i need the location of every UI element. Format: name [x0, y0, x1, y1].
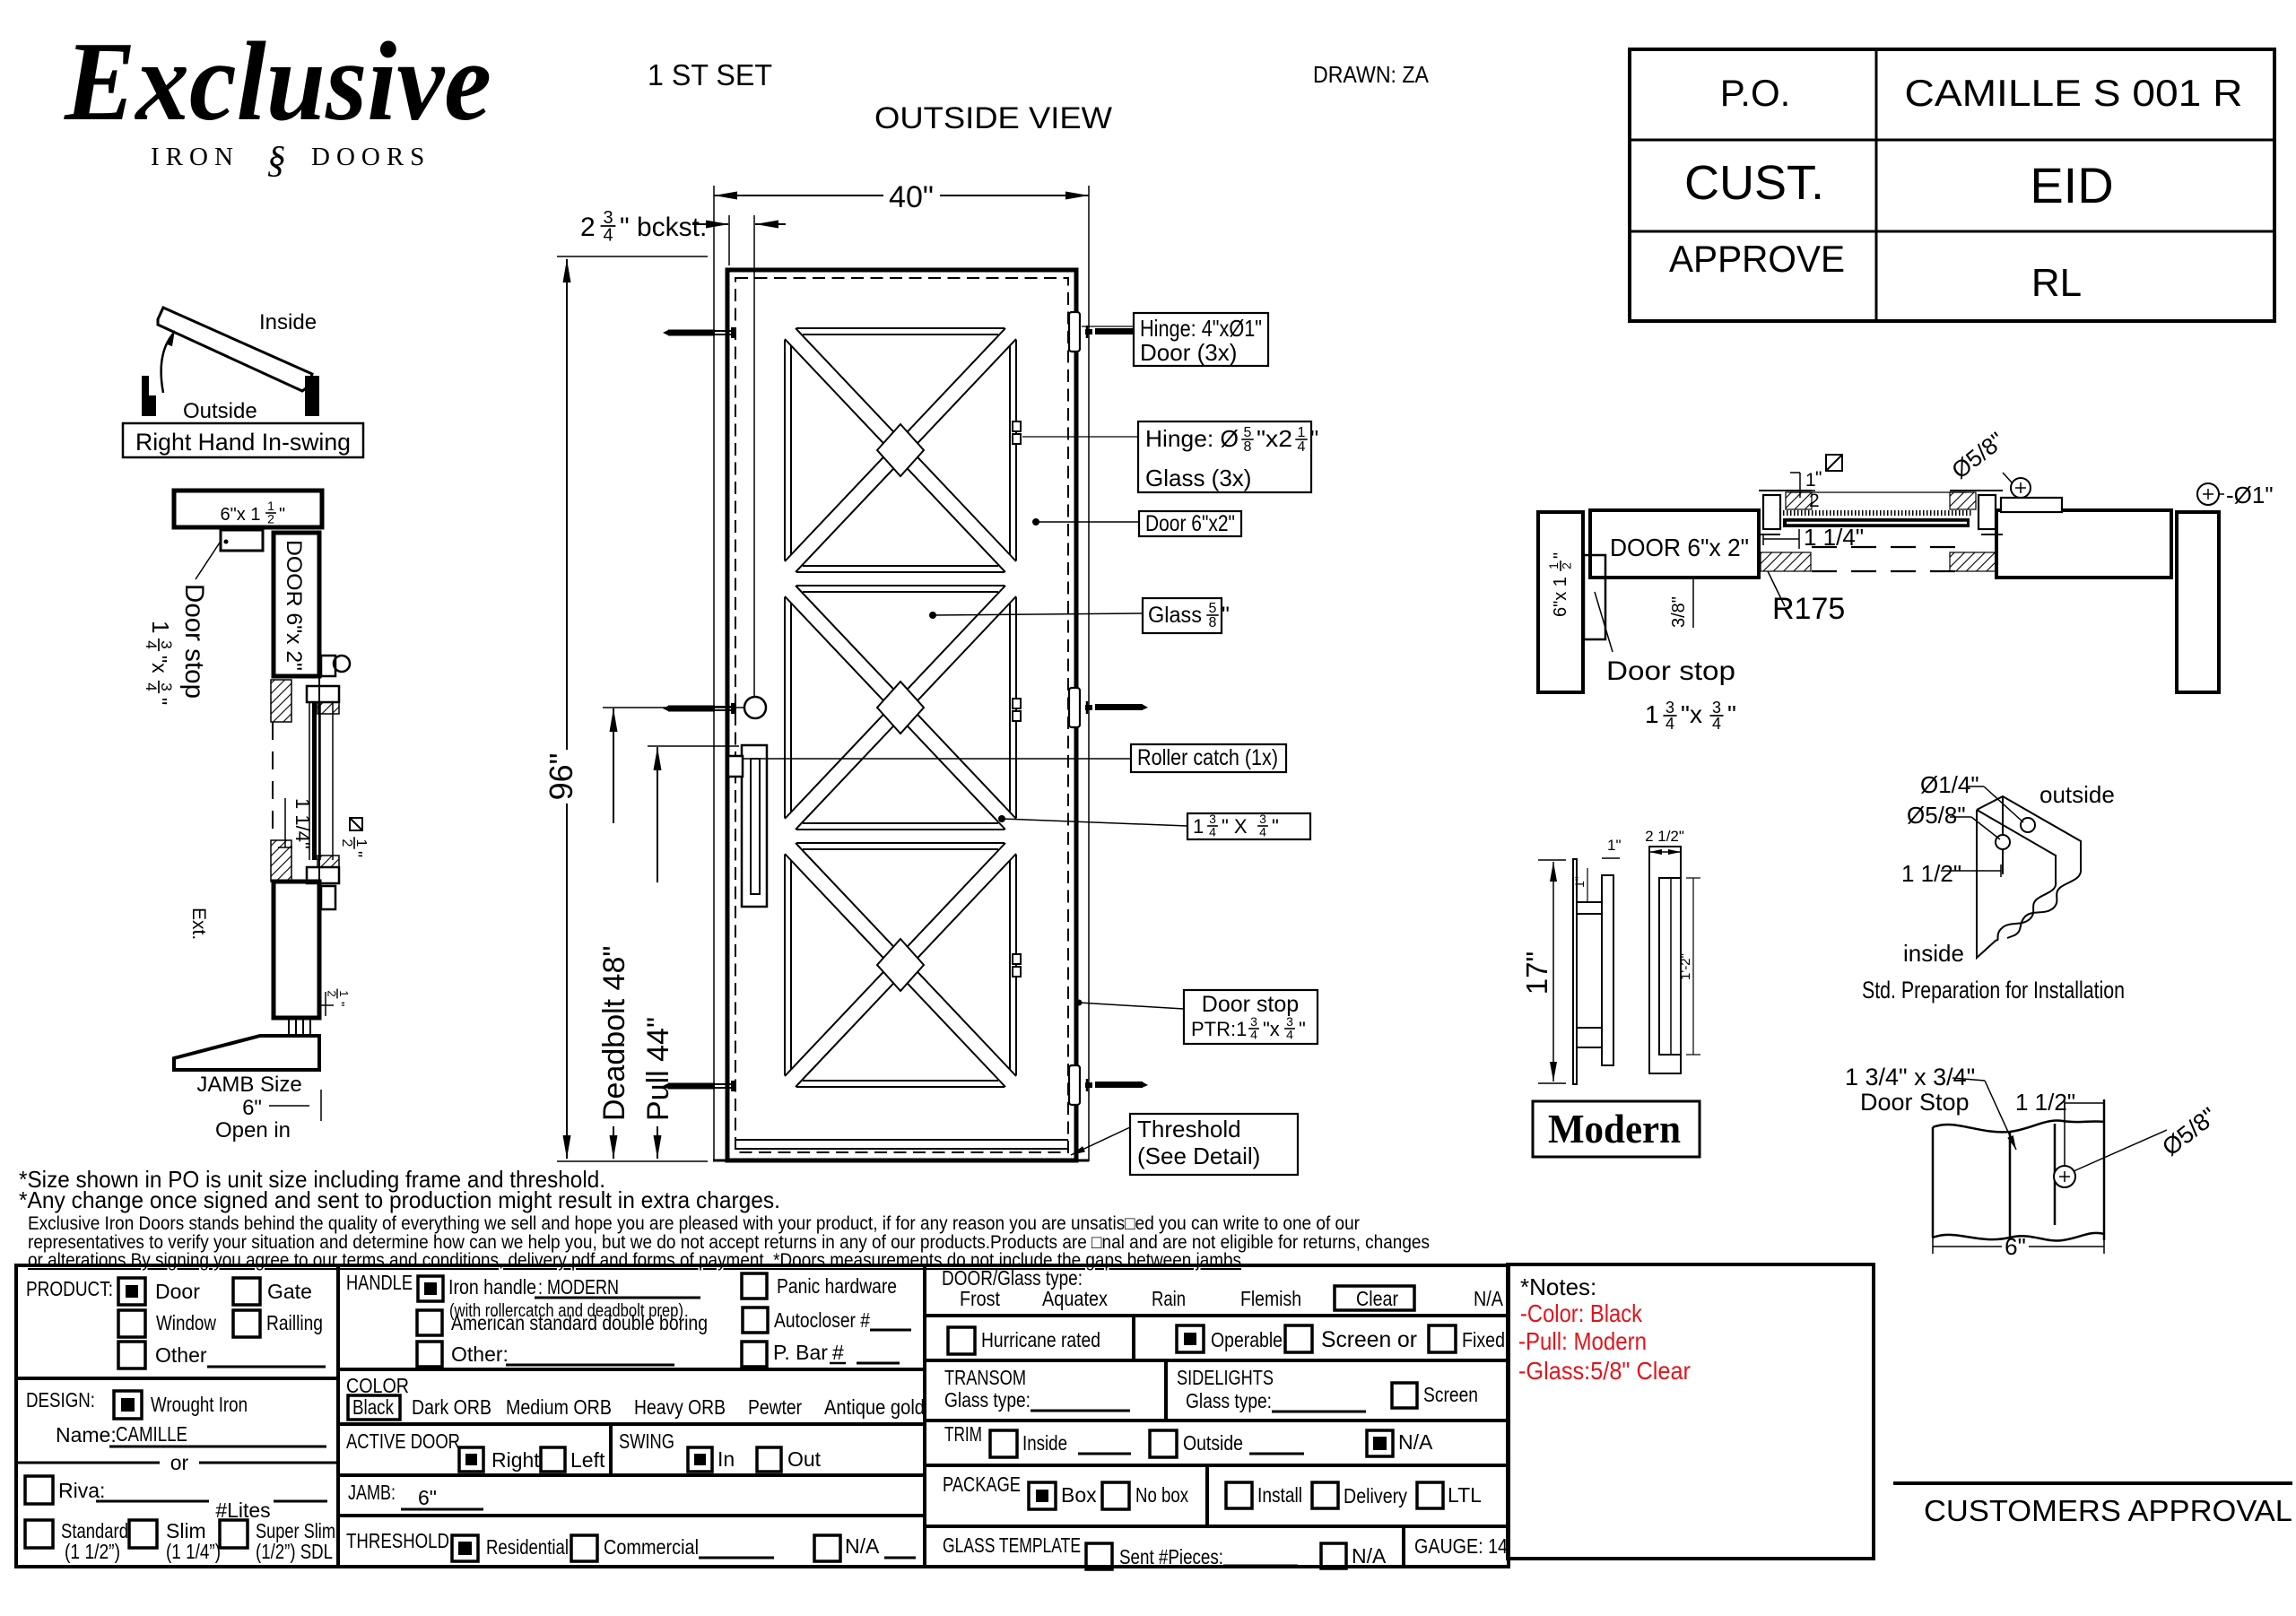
- svg-text:CUSTOMERS APPROVAL: CUSTOMERS APPROVAL: [1924, 1494, 2292, 1527]
- svg-text:SIDELIGHTS: SIDELIGHTS: [1177, 1366, 1274, 1389]
- svg-text:Right Hand In-swing: Right Hand In-swing: [135, 429, 351, 456]
- svg-text:": ": [332, 1002, 347, 1006]
- svg-text:1: 1: [353, 839, 369, 847]
- svg-text:4: 4: [1259, 824, 1266, 838]
- svg-text:-Glass:5/8" Clear: -Glass:5/8" Clear: [1518, 1357, 1691, 1385]
- svg-text:*Notes:: *Notes:: [1520, 1273, 1596, 1300]
- svg-text:8: 8: [1209, 615, 1217, 630]
- svg-text:§: §: [267, 140, 286, 181]
- svg-text:N/A: N/A: [1474, 1287, 1504, 1310]
- svg-text:40": 40": [889, 180, 934, 214]
- svg-text:Door (3x): Door (3x): [1140, 339, 1237, 366]
- svg-text:HANDLE: HANDLE: [346, 1271, 413, 1294]
- svg-text:4: 4: [1298, 439, 1306, 455]
- svg-text:EID: EID: [2030, 157, 2113, 213]
- svg-text:Residential: Residential: [486, 1535, 569, 1559]
- svg-text:4: 4: [143, 640, 160, 648]
- svg-text:Glass: Glass: [1148, 603, 1202, 628]
- svg-text:: MODERN: : MODERN: [538, 1275, 619, 1299]
- svg-text:1 3/4" x 3/4": 1 3/4" x 3/4": [1845, 1064, 1975, 1090]
- svg-text:2: 2: [580, 213, 596, 242]
- svg-text:2: 2: [339, 839, 354, 847]
- svg-text:#: #: [832, 1341, 844, 1364]
- svg-text:DOOR 6"x 2": DOOR 6"x 2": [282, 540, 306, 671]
- svg-text:"x: "x: [1263, 1018, 1280, 1040]
- svg-text:Screen: Screen: [1423, 1383, 1478, 1406]
- svg-text:THRESHOLD: THRESHOLD: [346, 1529, 449, 1552]
- svg-text:": ": [1222, 603, 1230, 628]
- svg-text:CAMILLE: CAMILLE: [116, 1422, 187, 1446]
- svg-text:6"x 1: 6"x 1: [1551, 577, 1570, 617]
- svg-text:-Color: Black: -Color: Black: [1520, 1299, 1643, 1327]
- svg-text:Riva:: Riva:: [58, 1479, 105, 1502]
- svg-text:Aquatex: Aquatex: [1042, 1287, 1108, 1310]
- svg-text:In: In: [717, 1447, 735, 1471]
- svg-text:PTR:1: PTR:1: [1191, 1018, 1247, 1040]
- svg-text:Hurricane rated: Hurricane rated: [981, 1328, 1100, 1351]
- svg-text:LTL: LTL: [1448, 1483, 1482, 1507]
- svg-text:": ": [279, 505, 285, 525]
- svg-text:6": 6": [242, 1096, 262, 1120]
- svg-text:Gate: Gate: [267, 1280, 312, 1303]
- svg-text:GLASS TEMPLATE: GLASS TEMPLATE: [943, 1533, 1081, 1557]
- svg-text:Medium ORB: Medium ORB: [506, 1395, 612, 1419]
- svg-text:DOOR 6"x 2": DOOR 6"x 2": [1610, 534, 1749, 561]
- svg-text:Other:: Other:: [451, 1342, 509, 1366]
- svg-text:Black: Black: [352, 1395, 394, 1419]
- svg-text:": ": [148, 698, 171, 705]
- svg-text:1 ST SET: 1 ST SET: [648, 58, 772, 91]
- svg-text:1: 1: [1805, 470, 1816, 491]
- svg-text:TRANSOM: TRANSOM: [944, 1366, 1026, 1389]
- svg-text:1": 1": [1607, 837, 1622, 854]
- svg-text:": ": [1551, 552, 1570, 559]
- svg-text:-Pull: Modern: -Pull: Modern: [1518, 1327, 1647, 1355]
- svg-text:CAMILLE S 001 R: CAMILLE S 001 R: [1905, 72, 2243, 114]
- svg-text:Right: Right: [491, 1448, 540, 1472]
- svg-text:1: 1: [1193, 815, 1204, 838]
- svg-text:IRON: IRON: [151, 143, 239, 171]
- svg-text:Modern: Modern: [1548, 1106, 1681, 1151]
- svg-text:Other: Other: [155, 1343, 207, 1367]
- svg-text:Glass (3x): Glass (3x): [1145, 465, 1251, 491]
- svg-text:PACKAGE: PACKAGE: [943, 1473, 1021, 1496]
- svg-text:Door stop: Door stop: [179, 584, 209, 699]
- svg-text:5: 5: [1209, 601, 1217, 616]
- svg-text:Operable: Operable: [1211, 1328, 1283, 1351]
- svg-text:Outside: Outside: [1183, 1431, 1243, 1455]
- svg-text:Glass type:: Glass type:: [944, 1388, 1031, 1412]
- svg-text:": ": [1727, 700, 1736, 728]
- svg-text:Door stop: Door stop: [1202, 992, 1299, 1017]
- svg-text:Commercial: Commercial: [604, 1535, 699, 1559]
- svg-text:-Ø1": -Ø1": [2226, 482, 2274, 508]
- svg-text:6": 6": [2005, 1233, 2026, 1260]
- svg-text:Hinge: Ø: Hinge: Ø: [1145, 425, 1239, 452]
- svg-text:P.O.: P.O.: [1720, 72, 1791, 114]
- svg-text:Iron handle: Iron handle: [448, 1275, 536, 1299]
- svg-text:Sent #Pieces:: Sent #Pieces:: [1119, 1545, 1223, 1568]
- svg-text:6": 6": [418, 1486, 437, 1509]
- svg-text:No box: No box: [1135, 1483, 1188, 1507]
- svg-text:DOORS: DOORS: [311, 143, 430, 171]
- svg-text:Frost: Frost: [960, 1287, 1001, 1310]
- svg-text:Fixed: Fixed: [1462, 1328, 1505, 1351]
- svg-text:JAMB:: JAMB:: [348, 1481, 396, 1504]
- svg-text:1: 1: [1645, 700, 1659, 728]
- svg-text:2 1/2": 2 1/2": [1645, 828, 1684, 845]
- svg-text:1 1/4": 1 1/4": [1804, 524, 1864, 551]
- svg-text:4: 4: [1665, 715, 1674, 733]
- svg-text:Threshold: Threshold: [1137, 1116, 1241, 1142]
- svg-text:Screen or: Screen or: [1321, 1327, 1417, 1352]
- svg-text:DESIGN:: DESIGN:: [26, 1388, 95, 1412]
- svg-text:1: 1: [1298, 425, 1306, 440]
- svg-text:4: 4: [1250, 1027, 1257, 1041]
- svg-text:Railling: Railling: [266, 1311, 323, 1334]
- svg-text:Clear: Clear: [1356, 1287, 1398, 1310]
- svg-text:Ext.: Ext.: [188, 908, 209, 940]
- svg-text:COLOR: COLOR: [346, 1374, 409, 1397]
- svg-text:*Any change once signed and se: *Any change once signed and sent to prod…: [19, 1186, 780, 1213]
- svg-text:8: 8: [1244, 439, 1252, 455]
- svg-text:(See Detail): (See Detail): [1137, 1142, 1260, 1169]
- svg-text:Inside: Inside: [1022, 1431, 1067, 1455]
- svg-text:1 1/4": 1 1/4": [291, 798, 314, 849]
- svg-text:Inside: Inside: [259, 310, 317, 334]
- svg-text:Heavy ORB: Heavy ORB: [634, 1395, 726, 1419]
- svg-text:Left: Left: [570, 1448, 605, 1472]
- svg-text:" bckst.: " bckst.: [620, 213, 707, 242]
- svg-text:2: 2: [325, 990, 338, 996]
- svg-text:Pull 44": Pull 44": [641, 1017, 675, 1121]
- svg-text:(1 1/2”): (1 1/2”): [65, 1540, 120, 1563]
- svg-text:6"x 1: 6"x 1: [221, 505, 261, 525]
- svg-text:Autocloser #: Autocloser #: [774, 1308, 870, 1332]
- svg-text:Roller catch (1x): Roller catch (1x): [1137, 745, 1278, 770]
- svg-text:N/A: N/A: [845, 1534, 880, 1558]
- svg-text:5: 5: [1244, 425, 1252, 440]
- svg-text:1": 1": [1572, 876, 1587, 888]
- svg-text:": ": [1815, 468, 1822, 489]
- svg-text:": ": [1310, 425, 1318, 452]
- svg-text:TRIM: TRIM: [944, 1422, 982, 1446]
- svg-text:PRODUCT:: PRODUCT:: [26, 1277, 113, 1300]
- svg-text:1 1/2": 1 1/2": [1901, 860, 1961, 887]
- svg-text:inside: inside: [1903, 940, 1964, 967]
- svg-text:SWING: SWING: [619, 1429, 674, 1453]
- svg-text:2: 2: [1809, 491, 1820, 511]
- svg-text:Door Stop: Door Stop: [1860, 1089, 1970, 1116]
- svg-text:CUST.: CUST.: [1684, 156, 1824, 210]
- svg-text:outside: outside: [2039, 781, 2115, 808]
- svg-text:3/8": 3/8": [1669, 596, 1689, 628]
- svg-text:Wrought Iron: Wrought Iron: [151, 1393, 248, 1416]
- svg-text:P. Bar: P. Bar: [773, 1341, 828, 1364]
- svg-text:4: 4: [603, 225, 613, 245]
- svg-text:Ø5/8": Ø5/8": [1907, 802, 1966, 829]
- svg-text:JAMB Size: JAMB Size: [196, 1073, 301, 1097]
- svg-text:Antique gold: Antique gold: [824, 1395, 925, 1419]
- svg-text:": ": [1272, 815, 1279, 838]
- svg-text:"x: "x: [1681, 700, 1702, 728]
- svg-text:American standard double borin: American standard double boring: [451, 1311, 708, 1334]
- svg-text:R175: R175: [1772, 592, 1845, 626]
- svg-text:96": 96": [543, 753, 579, 801]
- svg-text:Outside: Outside: [183, 399, 257, 423]
- svg-text:1 1/2": 1 1/2": [2015, 1089, 2075, 1116]
- svg-text:Dark ORB: Dark ORB: [412, 1395, 491, 1419]
- svg-text:2: 2: [267, 511, 274, 526]
- svg-text:17": 17": [1520, 951, 1553, 995]
- svg-text:Door stop: Door stop: [1606, 656, 1735, 686]
- svg-text:GAUGE: 14: GAUGE: 14: [1414, 1534, 1508, 1558]
- svg-text:"x2: "x2: [1257, 425, 1292, 452]
- svg-text:Glass type:: Glass type:: [1186, 1389, 1272, 1412]
- svg-text:Install: Install: [1257, 1483, 1302, 1507]
- svg-text:2: 2: [1559, 562, 1573, 569]
- svg-text:Out: Out: [787, 1447, 822, 1471]
- svg-text:or: or: [170, 1451, 189, 1474]
- svg-text:(1 1/4”): (1 1/4”): [166, 1540, 221, 1563]
- svg-text:4: 4: [1209, 824, 1216, 838]
- svg-text:ACTIVE DOOR: ACTIVE DOOR: [346, 1429, 460, 1453]
- svg-text:APPROVE: APPROVE: [1669, 238, 1845, 280]
- svg-text:Delivery: Delivery: [1344, 1484, 1407, 1507]
- svg-text:Deadbolt 48": Deadbolt 48": [597, 946, 631, 1121]
- svg-text:": ": [1299, 1018, 1306, 1040]
- svg-text:"x: "x: [148, 656, 171, 673]
- svg-text:Std. Preparation for Installat: Std. Preparation for Installation: [1862, 977, 2125, 1003]
- svg-text:" X: " X: [1222, 815, 1248, 838]
- svg-text:4: 4: [1712, 715, 1721, 733]
- svg-text:(1/2”) SDL: (1/2”) SDL: [256, 1540, 333, 1563]
- svg-text:N/A: N/A: [1352, 1544, 1387, 1568]
- svg-text:Name:: Name:: [56, 1423, 117, 1447]
- svg-text:N/A: N/A: [1398, 1430, 1433, 1454]
- svg-text:Hinge: 4"xØ1": Hinge: 4"xØ1": [1140, 315, 1262, 342]
- svg-text:": ": [345, 851, 365, 857]
- svg-text:1'-2": 1'-2": [1678, 953, 1693, 980]
- svg-text:Exclusive Iron Doors stands be: Exclusive Iron Doors stands behind the q…: [28, 1213, 1360, 1234]
- svg-text:Panic hardware: Panic hardware: [777, 1274, 897, 1298]
- svg-text:Open in: Open in: [215, 1118, 291, 1142]
- svg-text:Door 6"x2": Door 6"x2": [1145, 511, 1235, 536]
- svg-text:4: 4: [143, 682, 160, 691]
- svg-text:1: 1: [147, 621, 174, 633]
- svg-text:Ø1/4": Ø1/4": [1920, 771, 1979, 798]
- svg-text:Rain: Rain: [1152, 1287, 1186, 1310]
- svg-text:Door: Door: [155, 1280, 200, 1303]
- svg-text:Window: Window: [156, 1311, 216, 1334]
- svg-text:Box: Box: [1061, 1483, 1097, 1507]
- svg-text:Exclusive: Exclusive: [64, 20, 491, 144]
- svg-text:RL: RL: [2031, 261, 2082, 305]
- svg-text:OUTSIDE VIEW: OUTSIDE VIEW: [874, 101, 1112, 135]
- svg-text:Flemish: Flemish: [1240, 1287, 1301, 1310]
- svg-text:Pewter: Pewter: [748, 1395, 802, 1419]
- svg-text:4: 4: [1286, 1027, 1293, 1041]
- svg-text:DRAWN: ZA: DRAWN: ZA: [1313, 61, 1430, 88]
